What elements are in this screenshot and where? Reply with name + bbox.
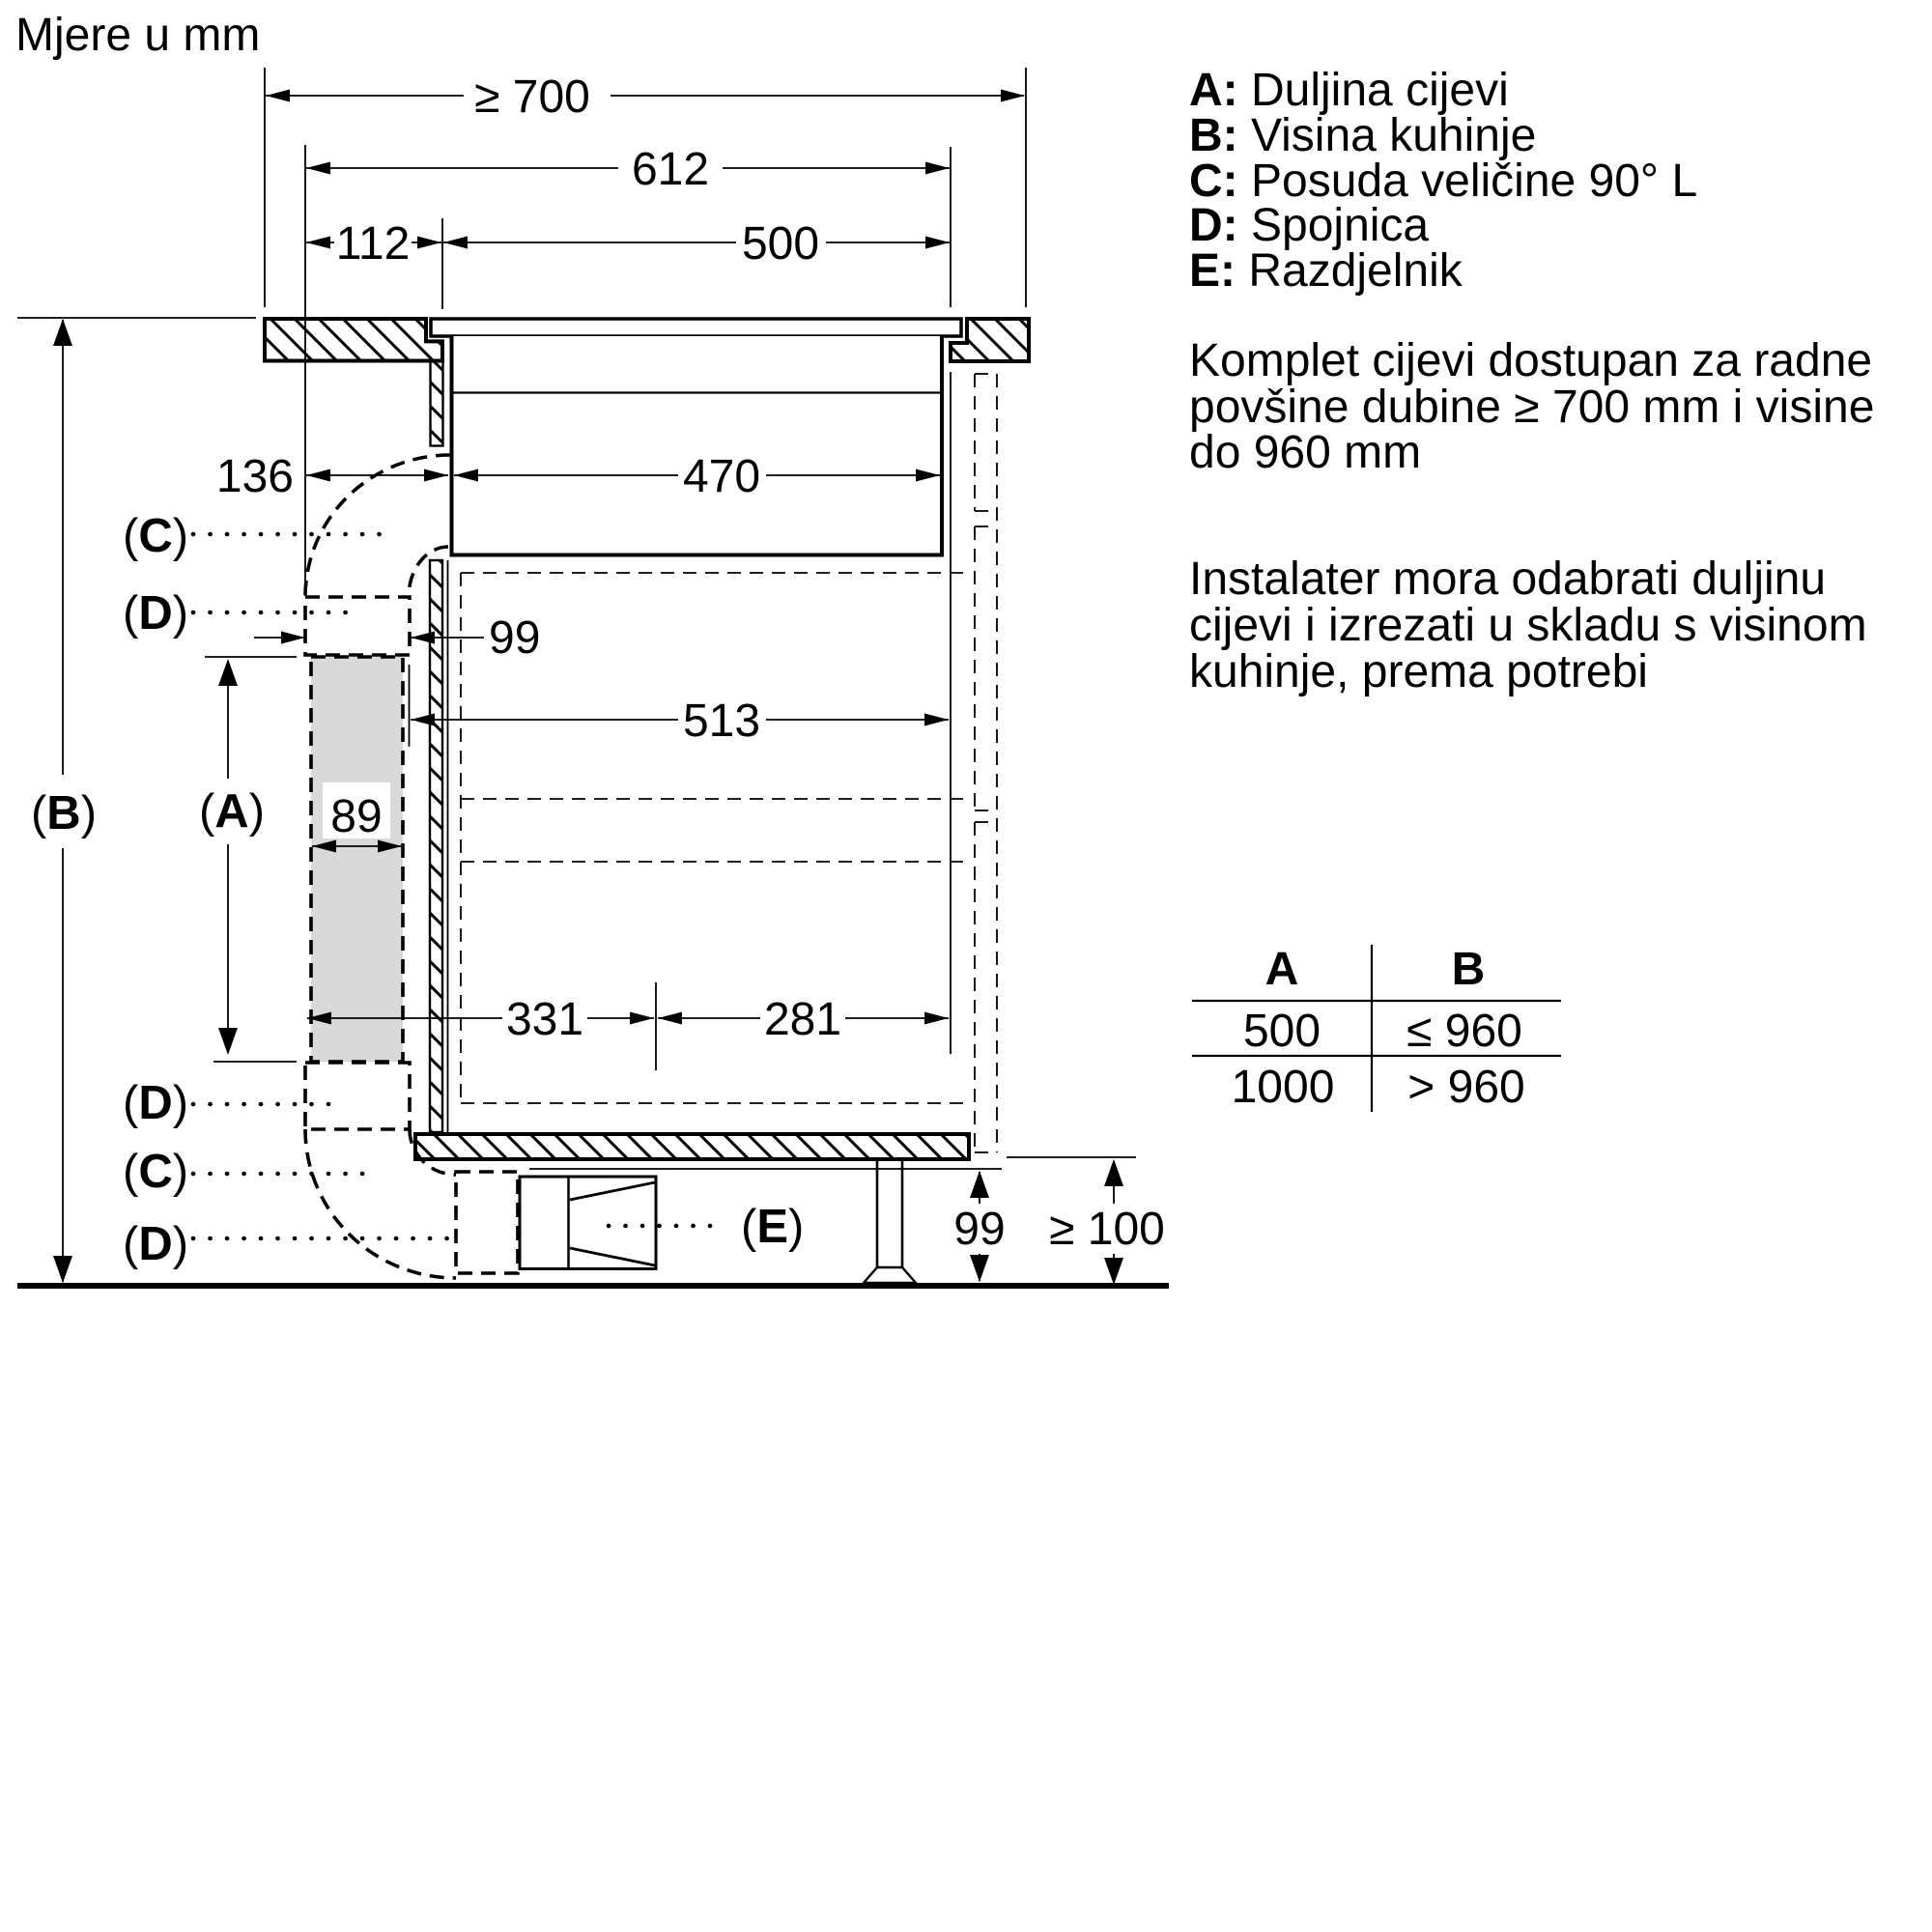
svg-text:do 960 mm: do 960 mm bbox=[1189, 427, 1421, 478]
svg-text:112: 112 bbox=[336, 218, 411, 270]
svg-text:470: 470 bbox=[683, 451, 760, 502]
svg-text:(C): (C) bbox=[123, 510, 188, 562]
svg-text:≤ 960: ≤ 960 bbox=[1406, 1006, 1522, 1057]
svg-text:99: 99 bbox=[489, 612, 540, 664]
svg-text:89: 89 bbox=[330, 791, 382, 842]
svg-text:(D): (D) bbox=[123, 1077, 188, 1129]
svg-text:A: A bbox=[1265, 944, 1299, 995]
svg-text:99: 99 bbox=[953, 1204, 1005, 1255]
svg-text:(E): (E) bbox=[741, 1201, 804, 1253]
svg-text:(D): (D) bbox=[123, 1218, 188, 1270]
svg-text:Instalater mora odabrati dulji: Instalater mora odabrati duljinu bbox=[1189, 554, 1826, 605]
svg-text:(A): (A) bbox=[199, 785, 265, 838]
svg-text:612: 612 bbox=[632, 144, 709, 195]
svg-text:E: Razdjelnik: E: Razdjelnik bbox=[1189, 245, 1463, 297]
svg-text:povšine dubine ≥ 700 mm i visi: povšine dubine ≥ 700 mm i visine bbox=[1189, 382, 1874, 433]
svg-text:D: Spojnica: D: Spojnica bbox=[1189, 200, 1429, 251]
svg-text:331: 331 bbox=[506, 994, 583, 1045]
svg-text:500: 500 bbox=[1243, 1006, 1321, 1057]
svg-text:500: 500 bbox=[742, 218, 819, 270]
svg-text:513: 513 bbox=[683, 696, 760, 747]
svg-text:kuhinje, prema potrebi: kuhinje, prema potrebi bbox=[1189, 646, 1648, 697]
svg-text:(C): (C) bbox=[123, 1146, 188, 1198]
svg-text:B: B bbox=[1452, 944, 1486, 995]
svg-text:Komplet cijevi dostupan za rad: Komplet cijevi dostupan za radne bbox=[1189, 335, 1872, 386]
svg-text:cijevi i izrezati u skladu s v: cijevi i izrezati u skladu s visinom bbox=[1189, 600, 1867, 651]
svg-text:Mjere u mm: Mjere u mm bbox=[15, 10, 260, 61]
svg-text:A: Duljina cijevi: A: Duljina cijevi bbox=[1189, 65, 1509, 116]
svg-text:B: Visina kuhinje: B: Visina kuhinje bbox=[1189, 110, 1536, 161]
svg-text:281: 281 bbox=[764, 994, 841, 1045]
svg-text:(D): (D) bbox=[123, 587, 188, 639]
svg-text:> 960: > 960 bbox=[1407, 1062, 1524, 1113]
svg-text:(B): (B) bbox=[31, 787, 97, 839]
svg-text:≥ 100: ≥ 100 bbox=[1049, 1204, 1165, 1255]
svg-text:≥ 700: ≥ 700 bbox=[474, 71, 590, 123]
svg-text:136: 136 bbox=[216, 451, 294, 502]
svg-text:1000: 1000 bbox=[1232, 1062, 1335, 1113]
